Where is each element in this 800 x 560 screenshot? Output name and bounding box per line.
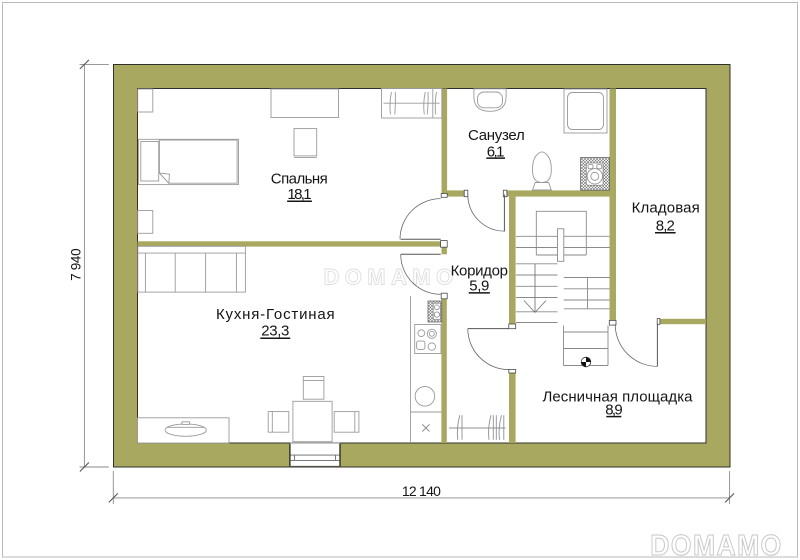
svg-text:18,1: 18,1 <box>287 186 311 203</box>
svg-text:Кладовая: Кладовая <box>632 200 700 217</box>
svg-text:8,9: 8,9 <box>605 401 623 418</box>
svg-text:DOMAMO: DOMAMO <box>323 264 458 289</box>
svg-text:7 940: 7 940 <box>69 248 84 281</box>
svg-text:Кухня-Гостиная: Кухня-Гостиная <box>216 306 335 323</box>
svg-text:Санузел: Санузел <box>468 127 525 144</box>
svg-text:DOMAMO: DOMAMO <box>650 530 783 560</box>
svg-text:12 140: 12 140 <box>402 483 441 499</box>
svg-text:8,2: 8,2 <box>656 217 675 234</box>
svg-text:23,3: 23,3 <box>261 322 289 339</box>
